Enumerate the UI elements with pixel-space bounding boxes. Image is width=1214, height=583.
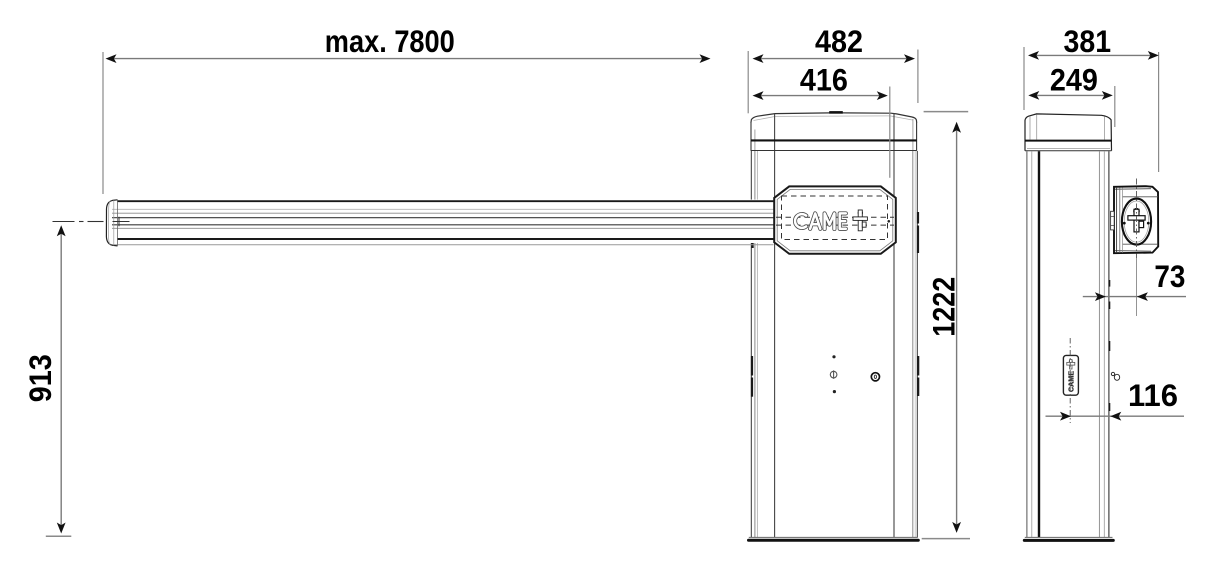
svg-text:CAME: CAME [1066,371,1075,392]
svg-text:416: 416 [800,61,848,97]
svg-text:1222: 1222 [925,277,961,337]
svg-text:381: 381 [1064,23,1112,59]
svg-text:max. 7800: max. 7800 [325,23,455,59]
svg-text:913: 913 [22,354,58,402]
svg-text:482: 482 [815,23,863,59]
svg-text:116: 116 [1128,377,1178,413]
svg-text:73: 73 [1154,258,1185,294]
svg-text:249: 249 [1050,62,1098,98]
